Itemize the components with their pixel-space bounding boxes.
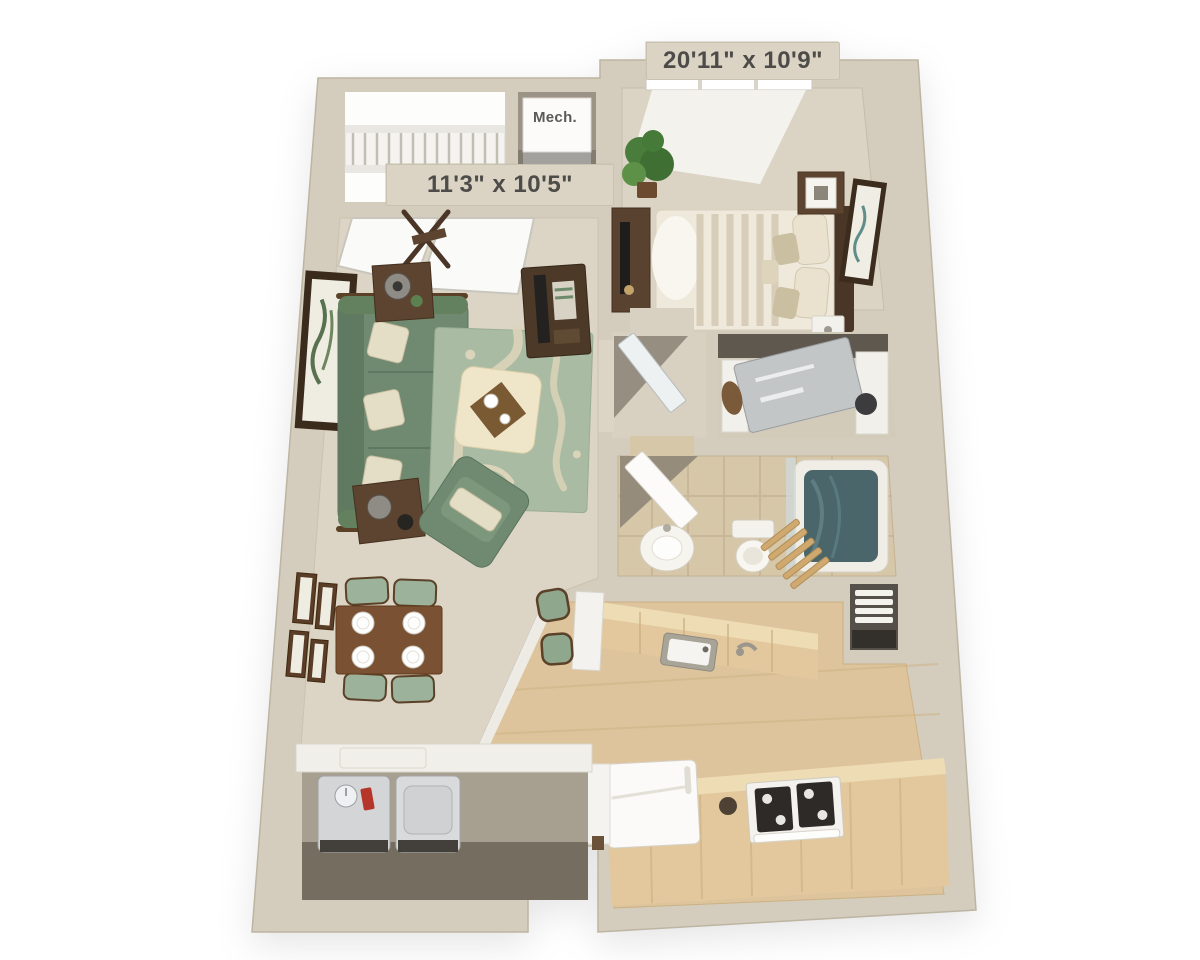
dining-chair [392, 675, 435, 702]
dining-table [336, 606, 442, 674]
walk-in-closet [718, 332, 896, 438]
bathtub [786, 458, 888, 574]
stove [746, 777, 844, 843]
bedroom-tv [620, 222, 630, 294]
dryer [396, 776, 460, 852]
tv-console [521, 264, 591, 358]
bar-stool [541, 633, 573, 665]
end-table-lamp-bottom [353, 478, 426, 544]
dining-chair [345, 577, 388, 605]
bedroom [612, 60, 887, 342]
dining-chair [394, 579, 437, 606]
pedestal-sink [640, 524, 694, 571]
dining-chair [343, 673, 386, 701]
bedroom-dimensions-label: 20'11" x 10'9" [646, 42, 840, 80]
laundry-closet [296, 744, 592, 900]
floor-plan-drawing [0, 0, 1200, 960]
end-table-lamp-top [372, 262, 434, 322]
kitchen-sink [660, 633, 718, 672]
dresser-with-tv [612, 208, 650, 312]
bar-stool [536, 588, 571, 623]
refrigerator [604, 760, 700, 849]
washer [318, 776, 390, 852]
nightstand-with-lamp [798, 172, 844, 214]
throw-pillow [363, 389, 406, 432]
bag [855, 393, 877, 415]
living-room-dimensions-label: 11'3" x 10'5" [386, 164, 614, 206]
mechanical-closet-label: Mech. [519, 100, 591, 134]
linen-closet [850, 584, 898, 650]
decor-bowl [719, 797, 737, 815]
ottoman [453, 365, 542, 454]
apartment-floor-plan: 20'11" x 10'9" 11'3" x 10'5" Mech. [0, 0, 1200, 960]
